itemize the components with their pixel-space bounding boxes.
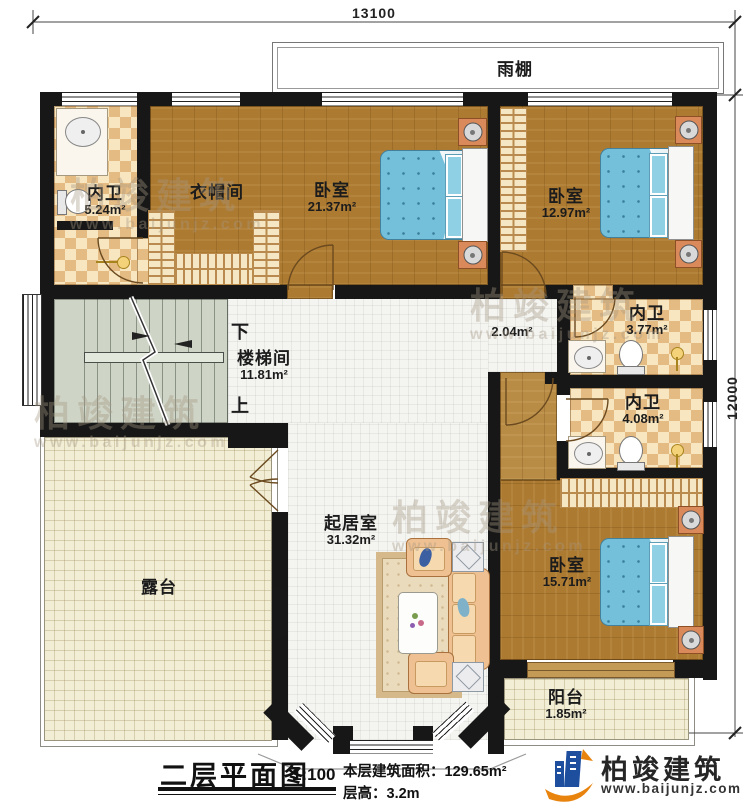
shower-icon xyxy=(117,256,130,269)
shower-hose xyxy=(96,261,118,263)
sofa-main xyxy=(448,568,490,670)
shower-hose xyxy=(676,357,678,371)
bed3-pillow-1 xyxy=(650,543,667,584)
flower-icon xyxy=(410,623,415,628)
bed2-pillow-1 xyxy=(650,154,667,195)
window-bath3 xyxy=(703,402,717,447)
floor-height-value: 3.2m xyxy=(387,786,420,802)
wall-mid-3 xyxy=(545,285,573,299)
wall-mid-4 xyxy=(613,285,717,299)
stair-down-label: 下 xyxy=(231,318,249,344)
bed3-pillow-2 xyxy=(650,584,667,625)
lamp-icon xyxy=(682,511,701,530)
wall-terrace-corner xyxy=(228,423,288,448)
floor-area-line: 本层建筑面积：129.65m² xyxy=(343,760,507,781)
floor-area-label: 本层建筑面积： xyxy=(343,764,445,780)
room-label-bath1: 内卫 5.24m² xyxy=(84,184,125,218)
wall-bath1-stub xyxy=(57,221,113,230)
bath2-door-gap xyxy=(573,285,613,299)
dimension-top: 13100 xyxy=(352,5,396,21)
room-label-bath3: 内卫 4.08m² xyxy=(622,393,663,427)
stair-handrail xyxy=(84,352,224,363)
bed2-wardrobe xyxy=(500,108,527,252)
sink-icon xyxy=(574,346,603,369)
window-bath2 xyxy=(703,310,717,360)
wall-bed1-bed2 xyxy=(488,106,500,285)
cloak-wardrobe-left xyxy=(148,210,175,285)
dimension-right: 12000 xyxy=(724,368,740,428)
room-label-hall: 2.04m² xyxy=(491,325,532,340)
canopy-label: 雨棚 xyxy=(497,60,533,79)
shower-hose xyxy=(676,454,678,468)
room-label-stairwell: 楼梯间 11.81m² xyxy=(237,349,291,383)
room-label-bed1: 卧室 21.37m² xyxy=(308,181,356,215)
brand-logo-icon xyxy=(541,745,597,803)
wall-bed3-balcony-left xyxy=(488,660,527,678)
bed3-wardrobe xyxy=(560,478,703,508)
bed1-headboard xyxy=(462,148,488,242)
floor-height-line: 层高：3.2m xyxy=(343,782,420,803)
armchair-bottom xyxy=(408,652,454,694)
room-label-living: 起居室 31.32m² xyxy=(324,514,378,548)
bed3-headboard xyxy=(668,536,694,628)
window-bed2 xyxy=(528,92,672,106)
toilet-icon xyxy=(619,436,643,465)
wall-passage-stub xyxy=(545,372,557,384)
bed1-nightstand-top xyxy=(458,118,487,146)
tv-icon xyxy=(274,585,288,641)
room-label-bath2: 内卫 3.77m² xyxy=(626,304,667,338)
bed2-door-gap xyxy=(500,285,545,299)
room-label-bed2: 卧室 12.97m² xyxy=(542,187,590,221)
flower-icon xyxy=(412,613,418,619)
window-stairwell xyxy=(22,294,42,406)
bed3-entry-passage-floor xyxy=(500,372,557,480)
wall-left xyxy=(40,92,54,437)
armchair-cushion xyxy=(415,661,447,687)
cloak-wardrobe-bottom xyxy=(175,253,253,285)
flower-icon xyxy=(418,620,424,626)
room-balcony-floor xyxy=(504,678,689,740)
room-label-bed3: 卧室 15.71m² xyxy=(543,556,591,590)
window-bath1 xyxy=(62,92,137,106)
bed2-headboard xyxy=(668,146,694,240)
room-label-cloak: 衣帽间 xyxy=(190,183,244,202)
bed1-door-gap xyxy=(287,285,333,299)
floor-height-label: 层高： xyxy=(343,786,387,802)
bed1-pillow-1 xyxy=(446,155,463,196)
cloak-wardrobe-right xyxy=(253,210,280,285)
lamp-icon xyxy=(679,245,698,264)
bed2-nightstand-top xyxy=(675,116,702,144)
title-underline-thick xyxy=(158,787,336,791)
wall-stair-terrace xyxy=(40,423,232,437)
bed3-nightstand-bottom xyxy=(678,626,704,654)
bed1-pillow-2 xyxy=(446,197,463,238)
room-label-terrace: 露台 xyxy=(141,578,177,597)
coffee-table xyxy=(398,592,438,654)
bed2-nightstand-bottom xyxy=(675,240,702,268)
toilet-tank xyxy=(617,366,645,375)
lamp-icon xyxy=(463,246,482,265)
toilet-tank xyxy=(617,462,645,471)
toilet-icon xyxy=(619,340,643,369)
wall-mid-1 xyxy=(40,285,287,299)
room-label-balcony: 阳台 1.85m² xyxy=(545,688,586,722)
lamp-icon xyxy=(463,123,482,142)
floor-area-value: 129.65m² xyxy=(445,764,507,780)
wall-bath2-bath3 xyxy=(557,375,717,388)
window-bed1 xyxy=(322,92,463,106)
brand-website: www.baijunjz.com xyxy=(601,781,742,796)
sofa-cushion xyxy=(452,635,476,665)
bay-window-bottom xyxy=(350,740,433,754)
side-table-bottom xyxy=(452,662,484,692)
sink-icon xyxy=(65,117,101,147)
lamp-icon xyxy=(679,121,698,140)
side-table-top xyxy=(452,542,484,572)
plan-scale: 1:100 xyxy=(292,765,335,785)
title-underline-thin xyxy=(158,794,336,795)
sliding-door-balcony xyxy=(527,662,675,678)
lamp-icon xyxy=(682,631,701,650)
bed2-pillow-2 xyxy=(650,196,667,237)
stair-up-label: 上 xyxy=(231,392,249,418)
wall-mid-2 xyxy=(335,285,500,299)
floor-plan: 雨棚 xyxy=(0,0,750,808)
sink-icon xyxy=(574,442,603,465)
bed3-nightstand-top xyxy=(678,506,704,534)
bed1-nightstand-bottom xyxy=(458,241,487,269)
window-cloak xyxy=(172,92,240,106)
wall-bed3-balcony-right xyxy=(673,660,717,678)
